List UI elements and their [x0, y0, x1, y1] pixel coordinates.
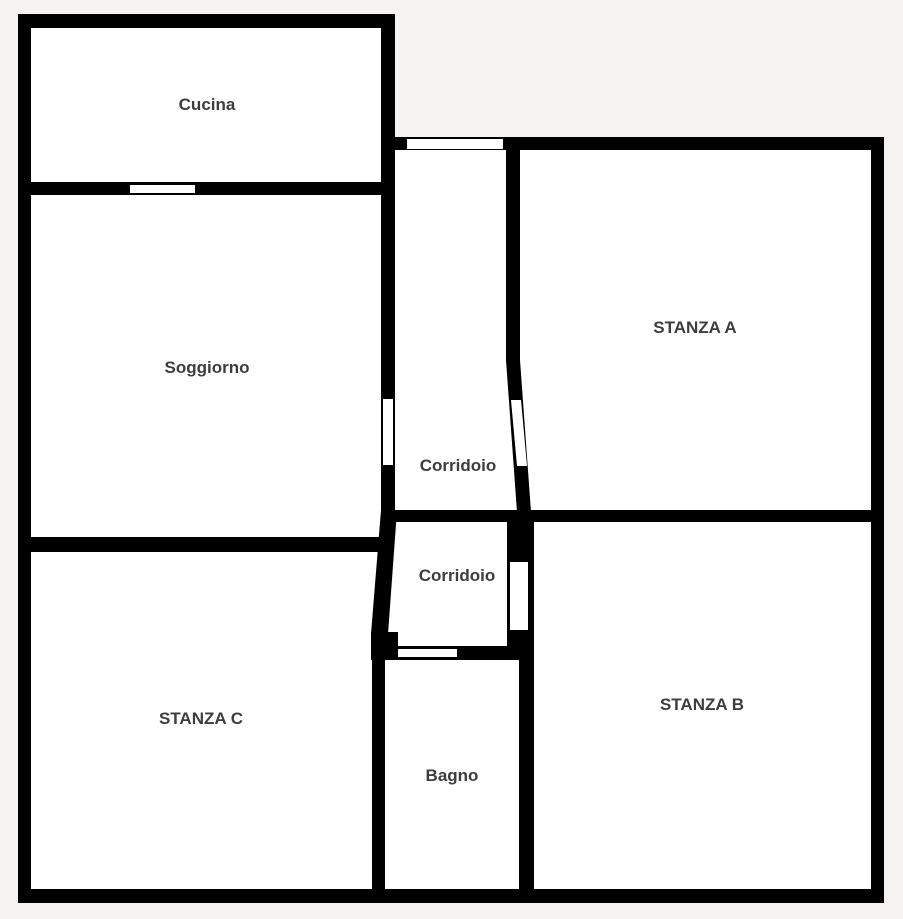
room-label-corridoio-lower: Corridoio — [419, 566, 496, 585]
wall-soggiorno-stanza-c — [18, 537, 381, 552]
window-cucina-soggiorno — [130, 185, 195, 193]
wall-outer-bottom — [18, 889, 884, 903]
wall-cucina-soggiorno — [31, 182, 381, 195]
floor-plan-page: Cucina Soggiorno STANZA C Corridoio Corr… — [0, 0, 903, 919]
wall-mid-horizontal — [381, 510, 871, 522]
wall-outer-top-left — [18, 14, 395, 28]
door-corridoio-stanza-b — [510, 562, 528, 630]
floor-plan: Cucina Soggiorno STANZA C Corridoio Corr… — [0, 0, 903, 919]
wall-bagno-left — [372, 652, 385, 889]
wall-outer-right — [871, 137, 884, 903]
room-label-stanza-b: STANZA B — [660, 695, 744, 714]
room-label-cucina: Cucina — [179, 95, 236, 114]
door-soggiorno-corridoio — [383, 399, 393, 465]
room-label-bagno: Bagno — [426, 766, 479, 785]
room-label-stanza-c: STANZA C — [159, 709, 243, 728]
room-label-corridoio-upper: Corridoio — [420, 456, 497, 475]
room-label-stanza-a: STANZA A — [653, 318, 736, 337]
wall-corridoio-stanza-a — [506, 150, 520, 362]
door-corridoio-bagno — [398, 649, 457, 657]
wall-bagno-stanza-b — [519, 652, 534, 889]
door-corridoio-top — [407, 139, 503, 149]
room-label-soggiorno: Soggiorno — [165, 358, 250, 377]
wall-outer-left — [18, 14, 31, 903]
